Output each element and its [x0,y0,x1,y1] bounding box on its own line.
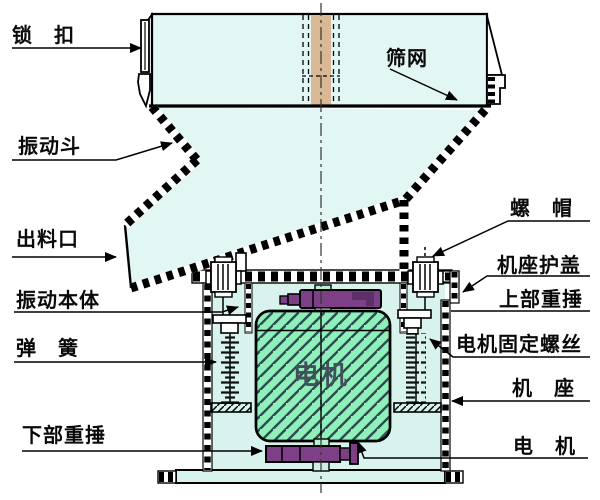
label-spring: 弹 簧 [14,336,216,362]
label-text-lower-weight: 下部重捶 [22,423,106,447]
label-text-machine-base: 机 座 [512,376,575,400]
label-text-discharge-outlet: 出料口 [16,228,79,251]
spring-shelf-left [211,403,251,412]
label-text-spring: 弹 簧 [16,336,79,360]
vibrating-body-wall-left [245,283,252,333]
base-foot-left [158,471,176,483]
motor-fixing-screw-right [406,333,426,403]
label-text-vibrating-hopper: 振动斗 [18,135,81,158]
base-wall-left [203,283,212,471]
label-vibrating-hopper: 振动斗 [12,135,172,160]
lock-clamp [138,13,153,106]
hopper-support-post [236,253,246,271]
label-base-cover: 机座护盖 [463,253,590,292]
base-plate [176,470,445,483]
label-lock: 锁 扣 [12,23,141,48]
label-text-upper-weight: 上部重捶 [499,287,583,311]
lid-overhang [487,16,502,75]
motor: 电机 [256,311,390,441]
label-text-motor-fixing-screw: 电机固定螺丝 [456,332,582,356]
label-machine-base: 机 座 [452,376,590,401]
label-text-sieve-mesh: 筛网 [386,46,428,70]
label-text-lock: 锁 扣 [12,23,75,47]
label-text-motor: 电 机 [513,434,576,458]
spring-left [220,333,240,403]
label-text-vibrating-body: 振动本体 [16,288,100,312]
base-foot-right [445,471,463,483]
label-nut: 螺 帽 [433,197,590,256]
spring-shelf-right [394,403,441,412]
vibrating-sieve-diagram: 电机 锁 扣 筛网 振动斗 出料口 振动本体 [0,0,600,500]
label-text-nut: 螺 帽 [510,197,573,220]
diagram-canvas: 电机 锁 扣 筛网 振动斗 出料口 振动本体 [0,0,600,500]
label-upper-weight: 上部重捶 [451,287,590,311]
leader-nut [433,221,590,256]
label-discharge-outlet: 出料口 [12,228,116,257]
base-wall-right [441,300,450,471]
label-text-base-cover: 机座护盖 [497,253,581,277]
label-motor-fixing-screw: 电机固定螺丝 [430,332,590,357]
